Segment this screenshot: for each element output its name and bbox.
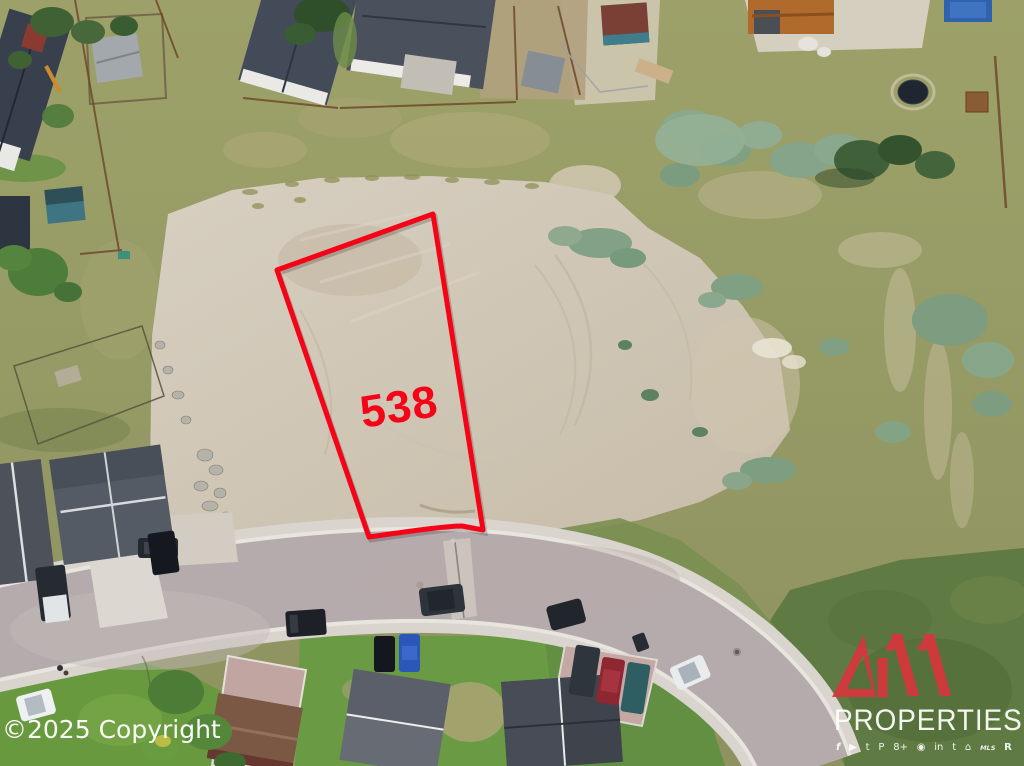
- equal-housing-icon: ⌂: [965, 742, 971, 753]
- bird-icon: t: [952, 742, 956, 753]
- brand-name: PROPERTIES: [834, 704, 1003, 738]
- blue-trampoline: [944, 0, 992, 22]
- pond: [892, 75, 934, 109]
- twitter-icon: t: [866, 742, 870, 753]
- brand-watermark: PROPERTIES f ▶ t P 8+ ◉ in t ⌂ MLS R: [828, 628, 1020, 766]
- house-gray-gable: [339, 669, 450, 766]
- utility-box: [118, 251, 130, 259]
- wood-pallet: [966, 92, 988, 112]
- teal-shed-left: [44, 186, 85, 224]
- brand-social-icons: f ▶ t P 8+ ◉ in t ⌂ MLS R: [836, 742, 1012, 753]
- brand-411-shapes: [832, 634, 951, 698]
- linkedin-icon: in: [934, 742, 943, 753]
- aerial-listing-photo: 538 ©2025 Copyright PROPERTIES f ▶ t P 8…: [0, 0, 1024, 766]
- google-plus-icon: 8+: [893, 742, 908, 753]
- youtube-icon: ▶: [849, 742, 857, 753]
- mls-icon: MLS: [980, 744, 995, 752]
- instagram-icon: ◉: [917, 742, 926, 753]
- pinterest-icon: P: [878, 742, 884, 753]
- teal-shed-right: [601, 2, 650, 45]
- realtor-icon: R: [1004, 742, 1012, 753]
- copyright-watermark: ©2025 Copyright: [2, 715, 221, 744]
- brand-411-mark: [828, 628, 956, 700]
- facebook-icon: f: [836, 742, 840, 753]
